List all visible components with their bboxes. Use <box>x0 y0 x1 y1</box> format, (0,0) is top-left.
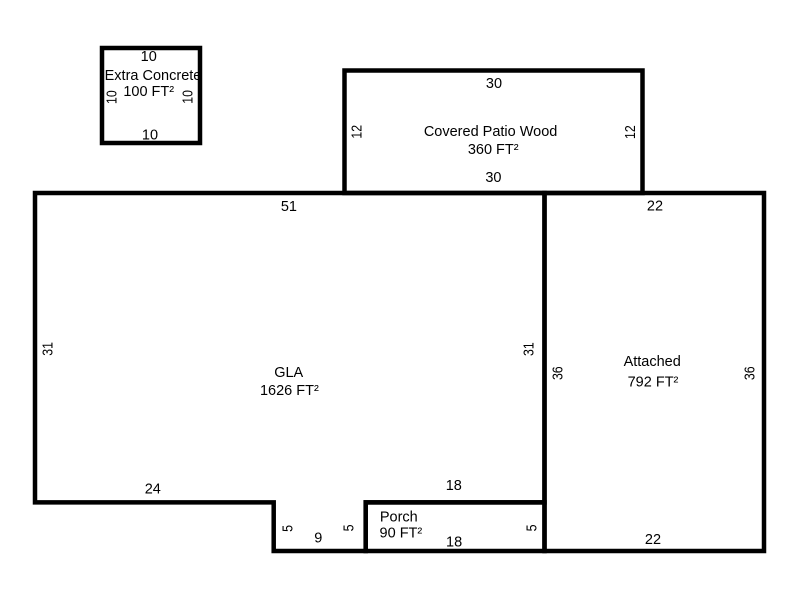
svg-text:10: 10 <box>104 90 120 104</box>
svg-text:360 FT²: 360 FT² <box>468 142 519 158</box>
svg-text:Attached: Attached <box>624 354 681 370</box>
svg-text:792 FT²: 792 FT² <box>628 375 679 391</box>
svg-text:30: 30 <box>486 76 502 92</box>
svg-text:90 FT²: 90 FT² <box>380 525 423 541</box>
svg-text:22: 22 <box>645 532 661 548</box>
svg-text:1626 FT²: 1626 FT² <box>260 383 319 399</box>
svg-text:5: 5 <box>280 525 296 532</box>
svg-text:18: 18 <box>446 534 462 550</box>
svg-text:Covered Patio Wood: Covered Patio Wood <box>424 124 558 140</box>
svg-text:12: 12 <box>622 125 638 139</box>
svg-text:31: 31 <box>40 342 56 356</box>
svg-text:10: 10 <box>142 127 158 143</box>
svg-text:100 FT²: 100 FT² <box>123 84 174 100</box>
svg-text:24: 24 <box>145 482 161 498</box>
svg-text:5: 5 <box>340 525 356 532</box>
svg-text:10: 10 <box>179 90 195 104</box>
svg-text:18: 18 <box>446 478 462 494</box>
svg-text:31: 31 <box>521 342 537 356</box>
svg-text:Extra Concrete: Extra Concrete <box>105 68 202 84</box>
svg-text:51: 51 <box>281 199 297 215</box>
svg-text:30: 30 <box>485 170 501 186</box>
svg-text:GLA: GLA <box>274 365 303 381</box>
svg-text:Porch: Porch <box>380 509 418 525</box>
svg-text:9: 9 <box>314 530 322 546</box>
svg-text:36: 36 <box>742 366 758 380</box>
svg-text:36: 36 <box>550 366 566 380</box>
svg-text:5: 5 <box>523 525 539 532</box>
svg-text:22: 22 <box>647 199 663 215</box>
svg-text:10: 10 <box>141 49 157 65</box>
svg-text:12: 12 <box>349 125 365 139</box>
